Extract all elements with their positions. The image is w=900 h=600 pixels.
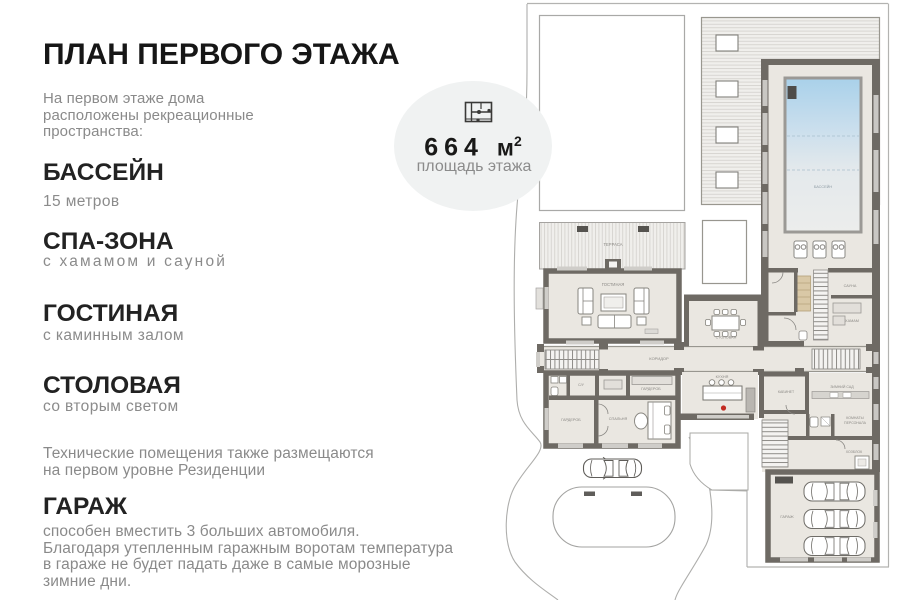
svg-text:ГАРАЖ: ГАРАЖ — [780, 514, 794, 519]
svg-text:ЗИМНИЙ САД: ЗИМНИЙ САД — [830, 385, 854, 389]
svg-text:БАССЕЙН: БАССЕЙН — [814, 185, 833, 189]
svg-text:С/У: С/У — [578, 383, 585, 387]
svg-text:КОМНАТЫ: КОМНАТЫ — [846, 416, 863, 420]
svg-text:СТОЛОВАЯ: СТОЛОВАЯ — [716, 336, 737, 340]
svg-text:ГАРДЕРОБ: ГАРДЕРОБ — [561, 418, 581, 422]
svg-text:САУНА: САУНА — [844, 284, 857, 288]
svg-text:ХАМАМ: ХАМАМ — [845, 319, 859, 323]
svg-text:КАБИНЕТ: КАБИНЕТ — [778, 390, 795, 394]
svg-text:ТЕРРАСА: ТЕРРАСА — [603, 242, 622, 247]
svg-text:СПАЛЬНЯ: СПАЛЬНЯ — [609, 417, 628, 421]
svg-text:КУХНЯ: КУХНЯ — [716, 375, 729, 379]
svg-text:КОРИДОР: КОРИДОР — [649, 356, 669, 361]
svg-text:ГАРДЕРОБ: ГАРДЕРОБ — [641, 387, 661, 391]
svg-text:ХОЗБЛОК: ХОЗБЛОК — [846, 450, 863, 454]
svg-text:ГОСТИНАЯ: ГОСТИНАЯ — [602, 282, 625, 287]
svg-text:ПЕРСОНАЛА: ПЕРСОНАЛА — [844, 421, 867, 425]
